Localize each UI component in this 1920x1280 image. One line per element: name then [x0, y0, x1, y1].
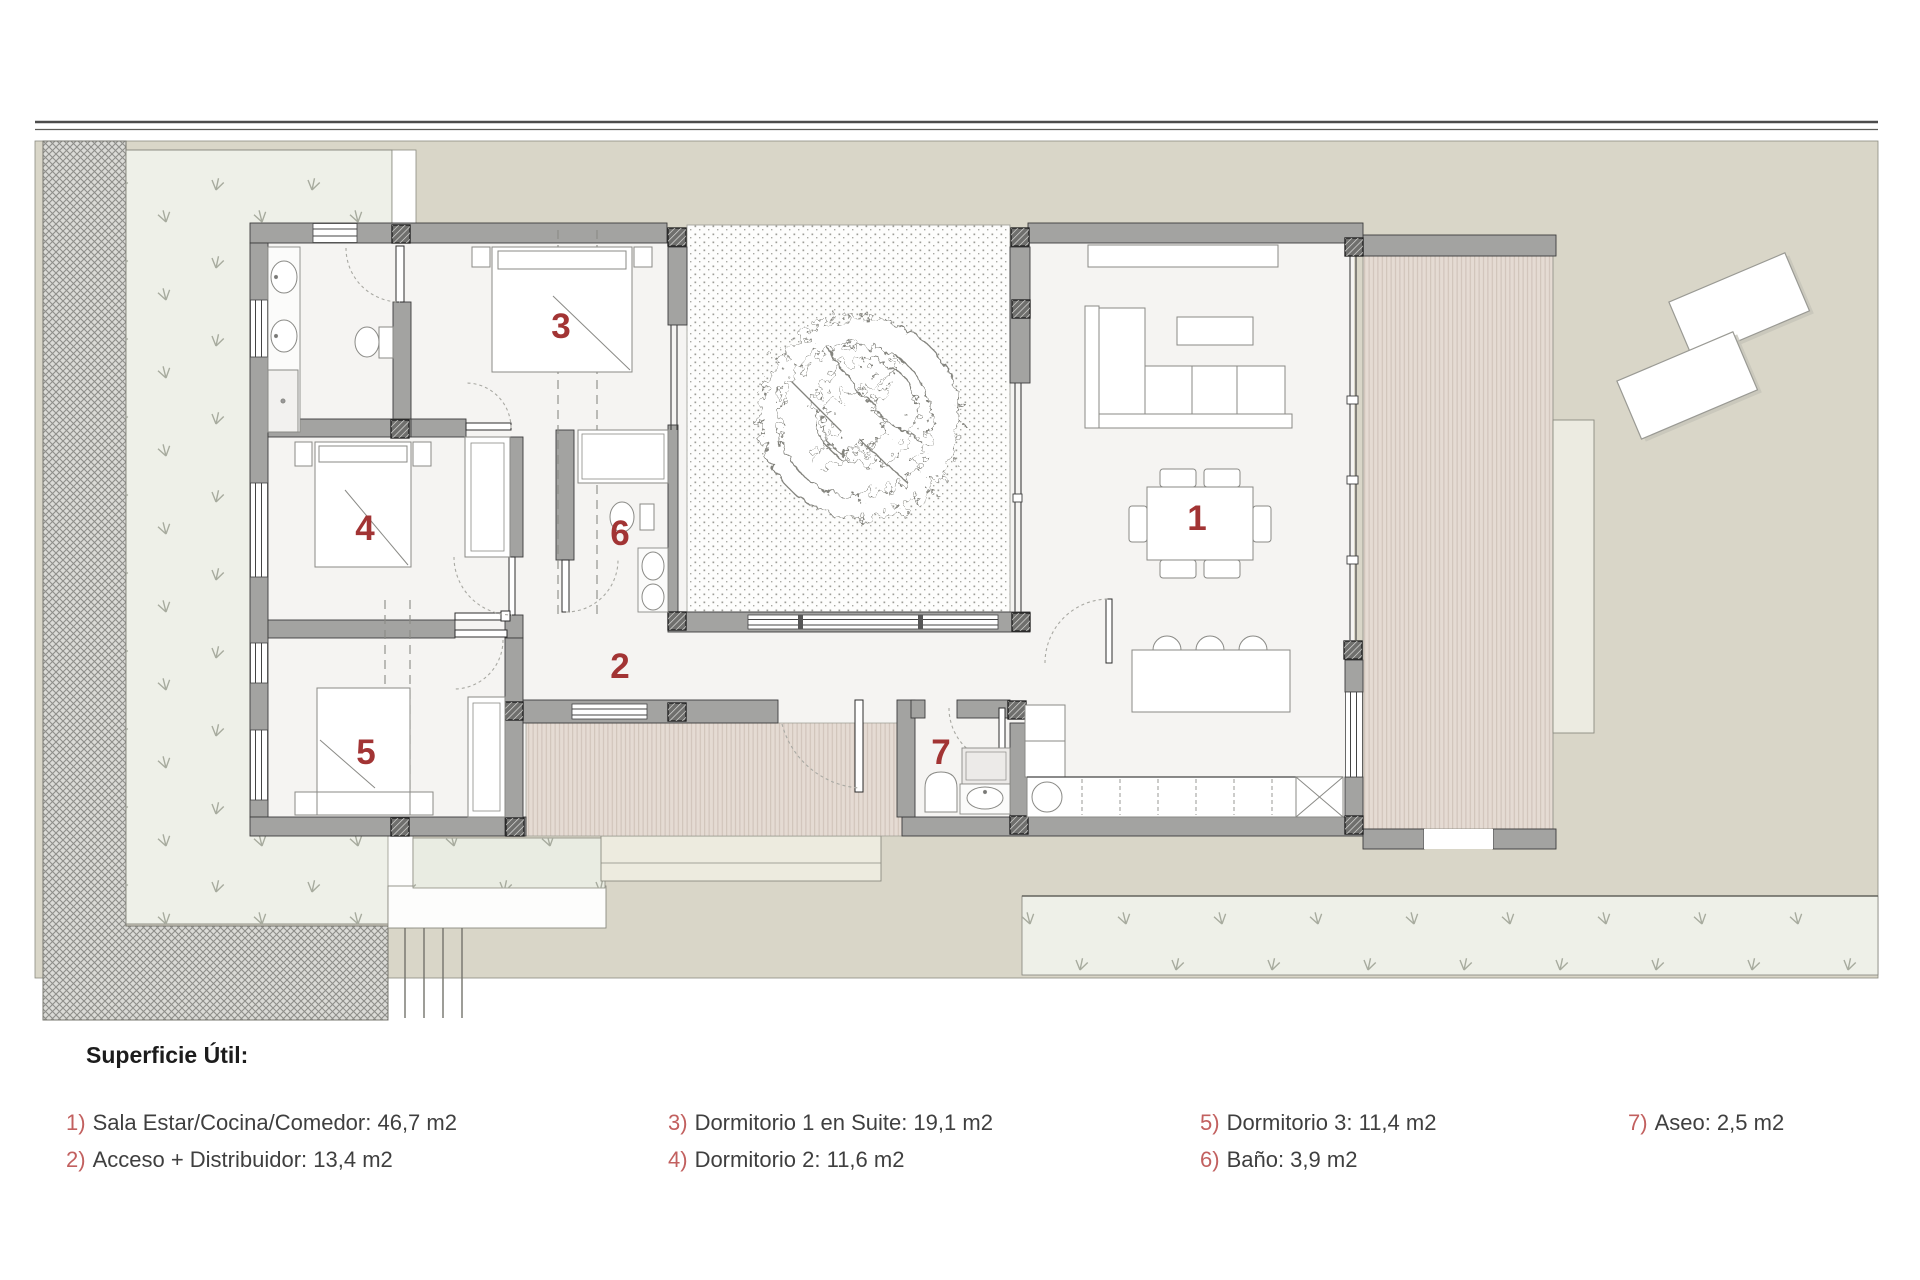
toilet-ensuite — [355, 327, 379, 357]
legend-title: Superficie Útil: — [86, 1042, 248, 1069]
legend-item-2-text: Acceso + Distribuidor: 13,4 m2 — [93, 1147, 393, 1172]
door-leaf-room4 — [509, 557, 515, 615]
legend-item-1: 1)Sala Estar/Cocina/Comedor: 46,7 m2 — [66, 1110, 457, 1136]
deck-opening — [1424, 829, 1493, 849]
legend-item-6-text: Baño: 3,9 m2 — [1227, 1147, 1358, 1172]
shower-bath6 — [578, 430, 668, 483]
legend-item-5: 5)Dormitorio 3: 11,4 m2 — [1200, 1110, 1436, 1136]
legend-item-3-text: Dormitorio 1 en Suite: 19,1 m2 — [695, 1110, 993, 1135]
wardrobe-room5 — [468, 697, 505, 817]
deck-top-wall — [1363, 235, 1556, 256]
house — [250, 223, 1594, 849]
toilet-tank — [379, 327, 393, 358]
deck-planter — [1553, 420, 1594, 733]
legend-item-3: 3)Dormitorio 1 en Suite: 19,1 m2 — [668, 1110, 993, 1136]
window-porch — [572, 704, 647, 719]
window-left-2 — [251, 483, 268, 577]
floor-plan-canvas: 1 2 3 4 5 6 7 — [0, 0, 1920, 1280]
kitchen-sink — [1032, 782, 1062, 812]
toilet-aseo — [925, 772, 957, 812]
door-leaf-bath-ensuite — [396, 246, 404, 302]
bed-room4 — [295, 442, 431, 567]
door-leaf-bath6 — [562, 560, 569, 612]
door-leaf-entry — [855, 700, 863, 792]
courtyard-tree — [760, 318, 960, 518]
room-label-6: 6 — [610, 514, 629, 553]
window-left-3 — [251, 643, 268, 683]
access-path-top — [392, 150, 416, 226]
legend-item-5-text: Dormitorio 3: 11,4 m2 — [1227, 1110, 1437, 1135]
window-courtyard-bottom — [748, 615, 998, 629]
legend-item-1-text: Sala Estar/Cocina/Comedor: 46,7 m2 — [93, 1110, 457, 1135]
toilet-tank-bath6 — [640, 504, 654, 530]
legend-item-4-number: 4) — [668, 1147, 688, 1172]
window-top-bath — [313, 224, 357, 243]
legend-item-3-number: 3) — [668, 1110, 688, 1135]
legend-item-2: 2)Acceso + Distribuidor: 13,4 m2 — [66, 1147, 393, 1173]
concrete-pad — [601, 836, 881, 881]
pocket-door-room5-b — [455, 630, 507, 637]
grass-pad-tufts — [413, 838, 605, 888]
legend-item-4: 4)Dormitorio 2: 11,6 m2 — [668, 1147, 904, 1173]
window-left-4 — [251, 730, 268, 800]
room-label-3: 3 — [551, 307, 570, 346]
room-label-7: 7 — [931, 733, 950, 772]
floor-plan-page: 1 2 3 4 5 6 7 Superficie Útil: 1)Sala Es… — [0, 0, 1920, 1280]
coffee-table — [1177, 317, 1253, 345]
sideboard — [1088, 245, 1278, 267]
entry-porch-deck — [526, 723, 902, 836]
legend-item-7: 7)Aseo: 2,5 m2 — [1628, 1110, 1784, 1136]
window-right — [1346, 692, 1363, 777]
room-label-5: 5 — [356, 733, 375, 772]
window-left-1 — [251, 300, 268, 357]
legend-item-7-number: 7) — [1628, 1110, 1648, 1135]
courtyard — [687, 225, 1010, 612]
kitchen-island — [1132, 636, 1290, 712]
room-label-4: 4 — [355, 509, 375, 548]
wardrobe-room4 — [465, 437, 510, 557]
legend-item-7-text: Aseo: 2,5 m2 — [1655, 1110, 1785, 1135]
room-label-1: 1 — [1187, 499, 1206, 538]
pocket-door-room3 — [466, 423, 511, 430]
legend-item-5-number: 5) — [1200, 1110, 1220, 1135]
grass-tufts-bottom-right — [1022, 896, 1878, 975]
legend-item-6: 6)Baño: 3,9 m2 — [1200, 1147, 1357, 1173]
legend-item-2-number: 2) — [66, 1147, 86, 1172]
room-label-2: 2 — [610, 647, 629, 686]
walkway-bottom — [388, 886, 606, 928]
legend-item-1-number: 1) — [66, 1110, 86, 1135]
door-leaf-living — [1106, 599, 1112, 663]
shower-aseo — [962, 748, 1010, 784]
legend-item-6-number: 6) — [1200, 1147, 1220, 1172]
legend-item-4-text: Dormitorio 2: 11,6 m2 — [695, 1147, 905, 1172]
